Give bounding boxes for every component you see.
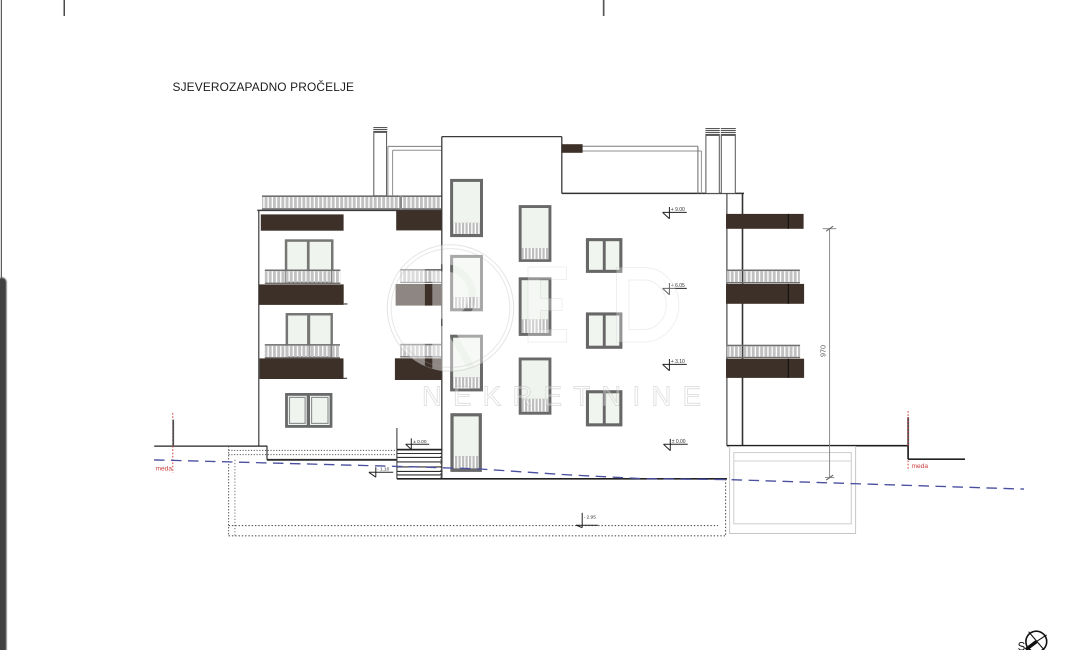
svg-text:970: 970 bbox=[819, 345, 828, 357]
svg-text:meda: meda bbox=[912, 463, 929, 470]
svg-text:- 2.95: - 2.95 bbox=[584, 514, 597, 520]
svg-text:+ 3.10: + 3.10 bbox=[671, 359, 685, 365]
svg-text:+ 9.00: + 9.00 bbox=[671, 207, 685, 213]
svg-text:SJEVEROZAPADNO PROČELJE: SJEVEROZAPADNO PROČELJE bbox=[173, 79, 355, 94]
svg-text:± 0.00: ± 0.00 bbox=[672, 439, 686, 445]
svg-text:meda: meda bbox=[156, 465, 173, 472]
svg-text:NEKRETNINE: NEKRETNINE bbox=[422, 381, 712, 412]
svg-text:- 1.10: - 1.10 bbox=[377, 467, 390, 473]
svg-text:S: S bbox=[1018, 642, 1026, 650]
svg-text:± 0.00: ± 0.00 bbox=[413, 439, 427, 445]
